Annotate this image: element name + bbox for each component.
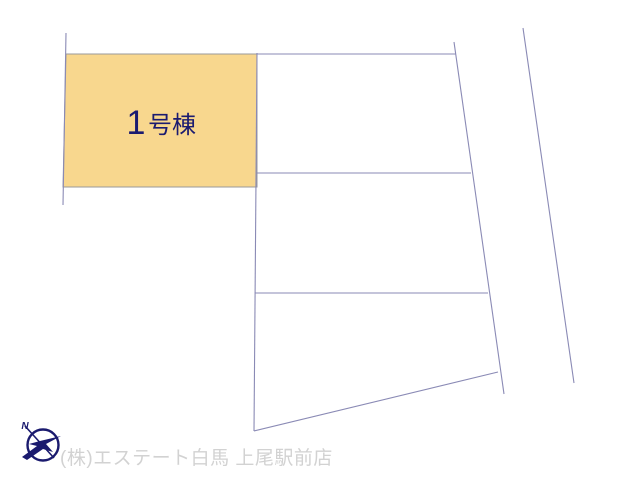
right-boundary-line xyxy=(454,42,504,394)
site-plan-canvas: 1 号棟 N (株)エステート白馬 上尾駅前店 xyxy=(0,0,640,480)
company-watermark: (株)エステート白馬 上尾駅前店 xyxy=(60,447,333,469)
road-boundary-line xyxy=(523,28,574,383)
site-plan: 1 号棟 N (株)エステート白馬 上尾駅前店 xyxy=(0,0,640,480)
compass-north-label: N xyxy=(21,421,29,432)
compass-icon: N xyxy=(21,421,61,461)
parcel-1-label-suffix: 号棟 xyxy=(148,112,196,139)
parcel-1-label-number: 1 xyxy=(127,104,146,142)
parcel-c-bottom-line xyxy=(254,372,498,431)
